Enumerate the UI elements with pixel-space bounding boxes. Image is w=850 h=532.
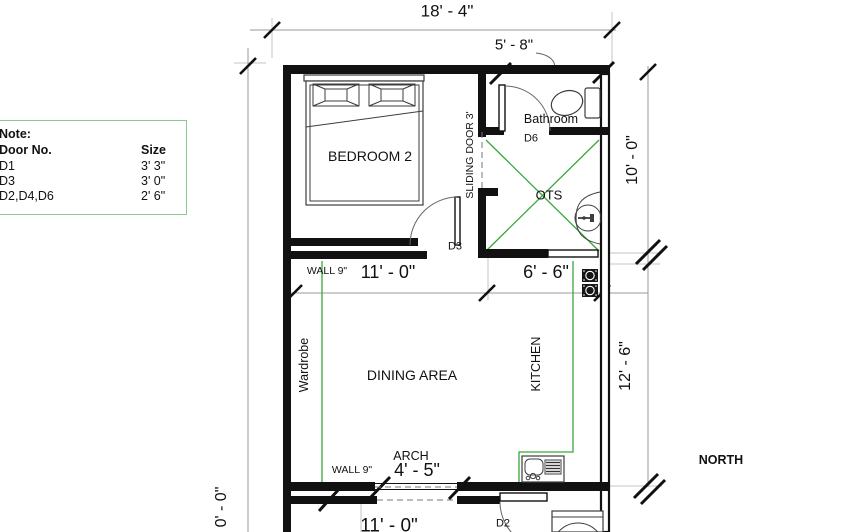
sliding-door-label: SLIDING DOOR 3' <box>465 111 476 198</box>
wash-basin-icon <box>575 192 601 244</box>
dim-right-mid: 12' - 6" <box>618 341 634 391</box>
note-title: Note: <box>0 127 31 141</box>
room-label-bathroom: Bathroom <box>524 113 578 126</box>
door-label-d6: D6 <box>524 134 538 145</box>
room-label-wardrobe: Wardrobe <box>298 338 311 392</box>
sliding-wall-lower <box>478 188 486 258</box>
door-label-d3: D3 <box>448 242 462 253</box>
dim-left-bottom: 0' - 0" <box>214 487 230 528</box>
dim-kitchen-width: 6' - 6" <box>523 263 569 281</box>
lower-wall-right <box>457 496 500 504</box>
dining-north-wall <box>283 251 427 259</box>
note-door: D3 <box>0 174 15 188</box>
window-end-block <box>540 249 548 258</box>
dim-bottom-room-width: 11' - 0" <box>360 517 418 532</box>
dining-south-wall-right <box>457 482 610 491</box>
bed-icon <box>304 75 424 205</box>
bedroom-south-wall <box>283 238 418 246</box>
right-wall <box>601 74 609 532</box>
note-col-door: Door No. <box>0 143 52 157</box>
sliding-wall-upper <box>478 65 486 137</box>
floor-plan: Note: Door No. Size D1 3' 3" D3 3' 0" D2… <box>0 0 850 532</box>
room-label-dining: DINING AREA <box>367 368 457 382</box>
kitchen-counter-line <box>519 261 573 485</box>
bed-headboard <box>304 75 424 81</box>
note-door: D2,D4,D6 <box>0 189 54 203</box>
door-d3-leaf <box>455 197 460 245</box>
room-label-bedroom2: BEDROOM 2 <box>328 149 412 163</box>
dim-right-top: 10' - 0" <box>625 135 641 185</box>
bathroom-south-wall <box>549 127 610 135</box>
dim-bathroom-width: 5' - 8" <box>495 38 533 53</box>
north-label: NORTH <box>699 454 743 467</box>
door-d6-leaf <box>499 85 505 131</box>
lower-wall-left <box>287 496 377 504</box>
kitchen-window <box>548 250 598 257</box>
room-label-ots: OTS <box>536 189 563 202</box>
top-wall <box>283 65 610 74</box>
left-wall <box>283 65 291 532</box>
note-col-size: Size <box>141 143 166 157</box>
room-label-arch: ARCH <box>393 450 428 463</box>
note-table: Note: Door No. Size D1 3' 3" D3 3' 0" D2… <box>0 120 187 215</box>
leader-line <box>536 53 555 66</box>
ots-south-wall <box>478 249 548 258</box>
note-size: 3' 3" <box>141 159 165 173</box>
stove-icon <box>582 269 598 297</box>
kitchen-sink-icon <box>522 456 564 482</box>
room-label-kitchen: KITCHEN <box>530 337 543 392</box>
dim-dining-width: 11' - 0" <box>361 263 416 281</box>
dim-top-width: 18' - 4" <box>421 3 474 20</box>
note-door: D1 <box>0 159 15 173</box>
wall-thickness-label: WALL 9" <box>307 266 347 277</box>
wall-thickness-label: WALL 9" <box>332 465 372 476</box>
dim-arch-width: 4' - 5" <box>394 461 440 479</box>
washing-machine-icon <box>552 511 604 532</box>
dining-south-wall-left <box>283 482 375 491</box>
door-d2-leaf <box>500 493 547 501</box>
note-size: 2' 6" <box>141 189 165 203</box>
note-size: 3' 0" <box>141 174 165 188</box>
door-label-d2: D2 <box>496 519 510 530</box>
